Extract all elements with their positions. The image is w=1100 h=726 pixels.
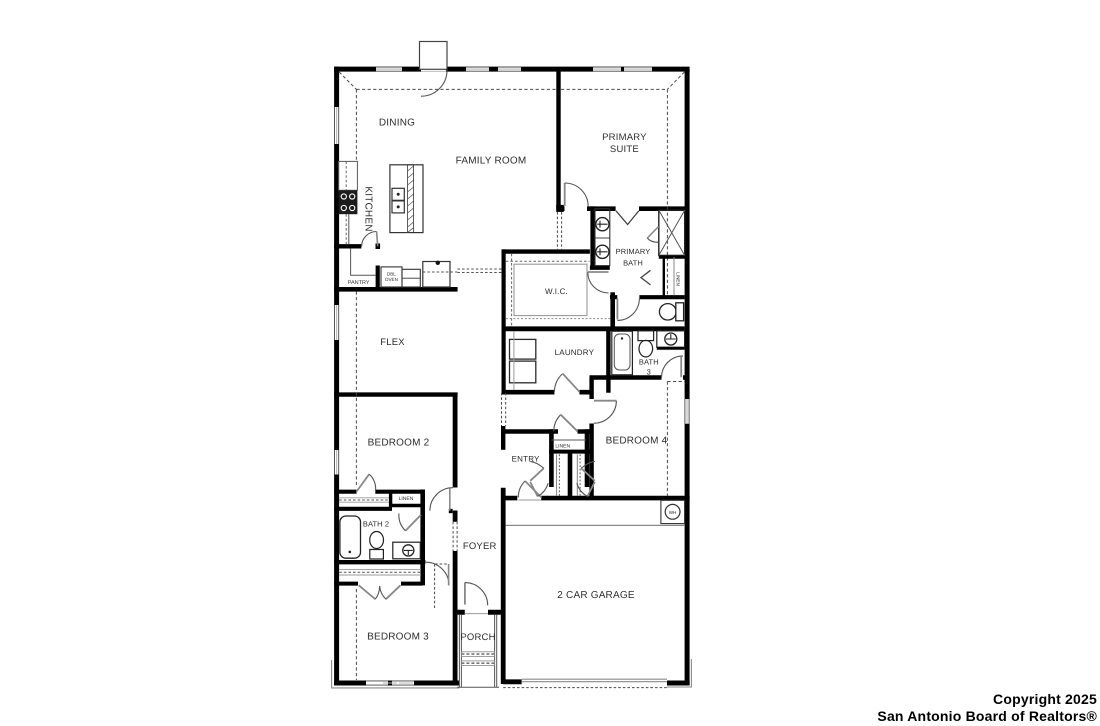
svg-text:BATH: BATH bbox=[639, 358, 659, 367]
svg-text:W.I.C.: W.I.C. bbox=[545, 287, 568, 296]
svg-text:PORCH: PORCH bbox=[460, 632, 495, 643]
svg-text:BATH: BATH bbox=[623, 259, 643, 268]
svg-text:2 CAR GARAGE: 2 CAR GARAGE bbox=[557, 590, 635, 601]
svg-text:BEDROOM 3: BEDROOM 3 bbox=[367, 632, 429, 643]
svg-text:PRIMARY: PRIMARY bbox=[616, 247, 651, 256]
svg-text:FLEX: FLEX bbox=[380, 337, 405, 348]
svg-text:BEDROOM 4: BEDROOM 4 bbox=[606, 436, 668, 447]
svg-text:LAUNDRY: LAUNDRY bbox=[555, 348, 595, 357]
svg-text:BEDROOM 2: BEDROOM 2 bbox=[368, 438, 430, 449]
svg-text:PRIMARY: PRIMARY bbox=[602, 132, 647, 143]
svg-text:ENTRY: ENTRY bbox=[512, 455, 540, 464]
svg-text:3: 3 bbox=[647, 368, 651, 377]
svg-text:OVEN: OVEN bbox=[385, 277, 398, 282]
svg-text:LINEN: LINEN bbox=[399, 496, 414, 502]
svg-text:WH: WH bbox=[669, 510, 677, 515]
svg-text:FOYER: FOYER bbox=[463, 541, 497, 552]
svg-text:PANTRY: PANTRY bbox=[348, 280, 370, 286]
svg-text:LINEN: LINEN bbox=[676, 272, 681, 286]
svg-text:SUITE: SUITE bbox=[610, 144, 639, 155]
svg-text:DBL: DBL bbox=[387, 271, 396, 276]
svg-text:LINEN: LINEN bbox=[555, 443, 570, 449]
svg-text:FAMILY ROOM: FAMILY ROOM bbox=[456, 156, 527, 167]
svg-text:BATH 2: BATH 2 bbox=[363, 520, 389, 529]
svg-text:KITCHEN: KITCHEN bbox=[363, 186, 374, 231]
svg-text:DINING: DINING bbox=[379, 118, 415, 129]
